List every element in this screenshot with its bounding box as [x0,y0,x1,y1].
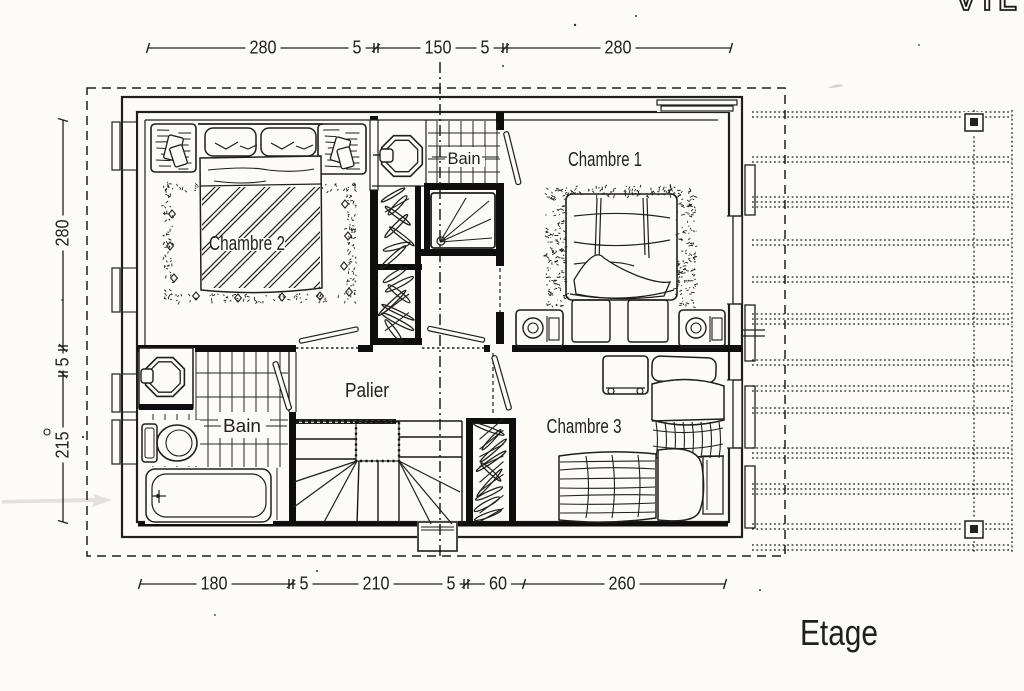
svg-text:180: 180 [201,574,228,594]
svg-text:215: 215 [53,432,73,459]
svg-text:Chambre 3: Chambre 3 [547,416,622,438]
svg-text:260: 260 [609,574,636,594]
svg-text:60: 60 [489,574,507,594]
svg-text:Etage: Etage [800,612,878,653]
svg-text:Bain: Bain [448,149,481,168]
svg-text:Palier: Palier [345,380,389,402]
svg-text:5: 5 [300,574,309,594]
svg-text:150: 150 [425,38,452,58]
svg-text:VILL: VILL [956,0,1024,17]
svg-text:5: 5 [447,574,456,594]
svg-text:5: 5 [53,358,73,367]
svg-text:Chambre 1: Chambre 1 [568,149,642,171]
svg-text:280: 280 [250,38,277,58]
svg-text:5: 5 [481,38,490,58]
svg-text:Chambre 2: Chambre 2 [209,233,285,255]
svg-text:280: 280 [605,38,632,58]
svg-text:5: 5 [353,38,362,58]
svg-text:280: 280 [53,220,73,247]
svg-text:Bain: Bain [223,416,261,436]
svg-text:210: 210 [363,574,390,594]
